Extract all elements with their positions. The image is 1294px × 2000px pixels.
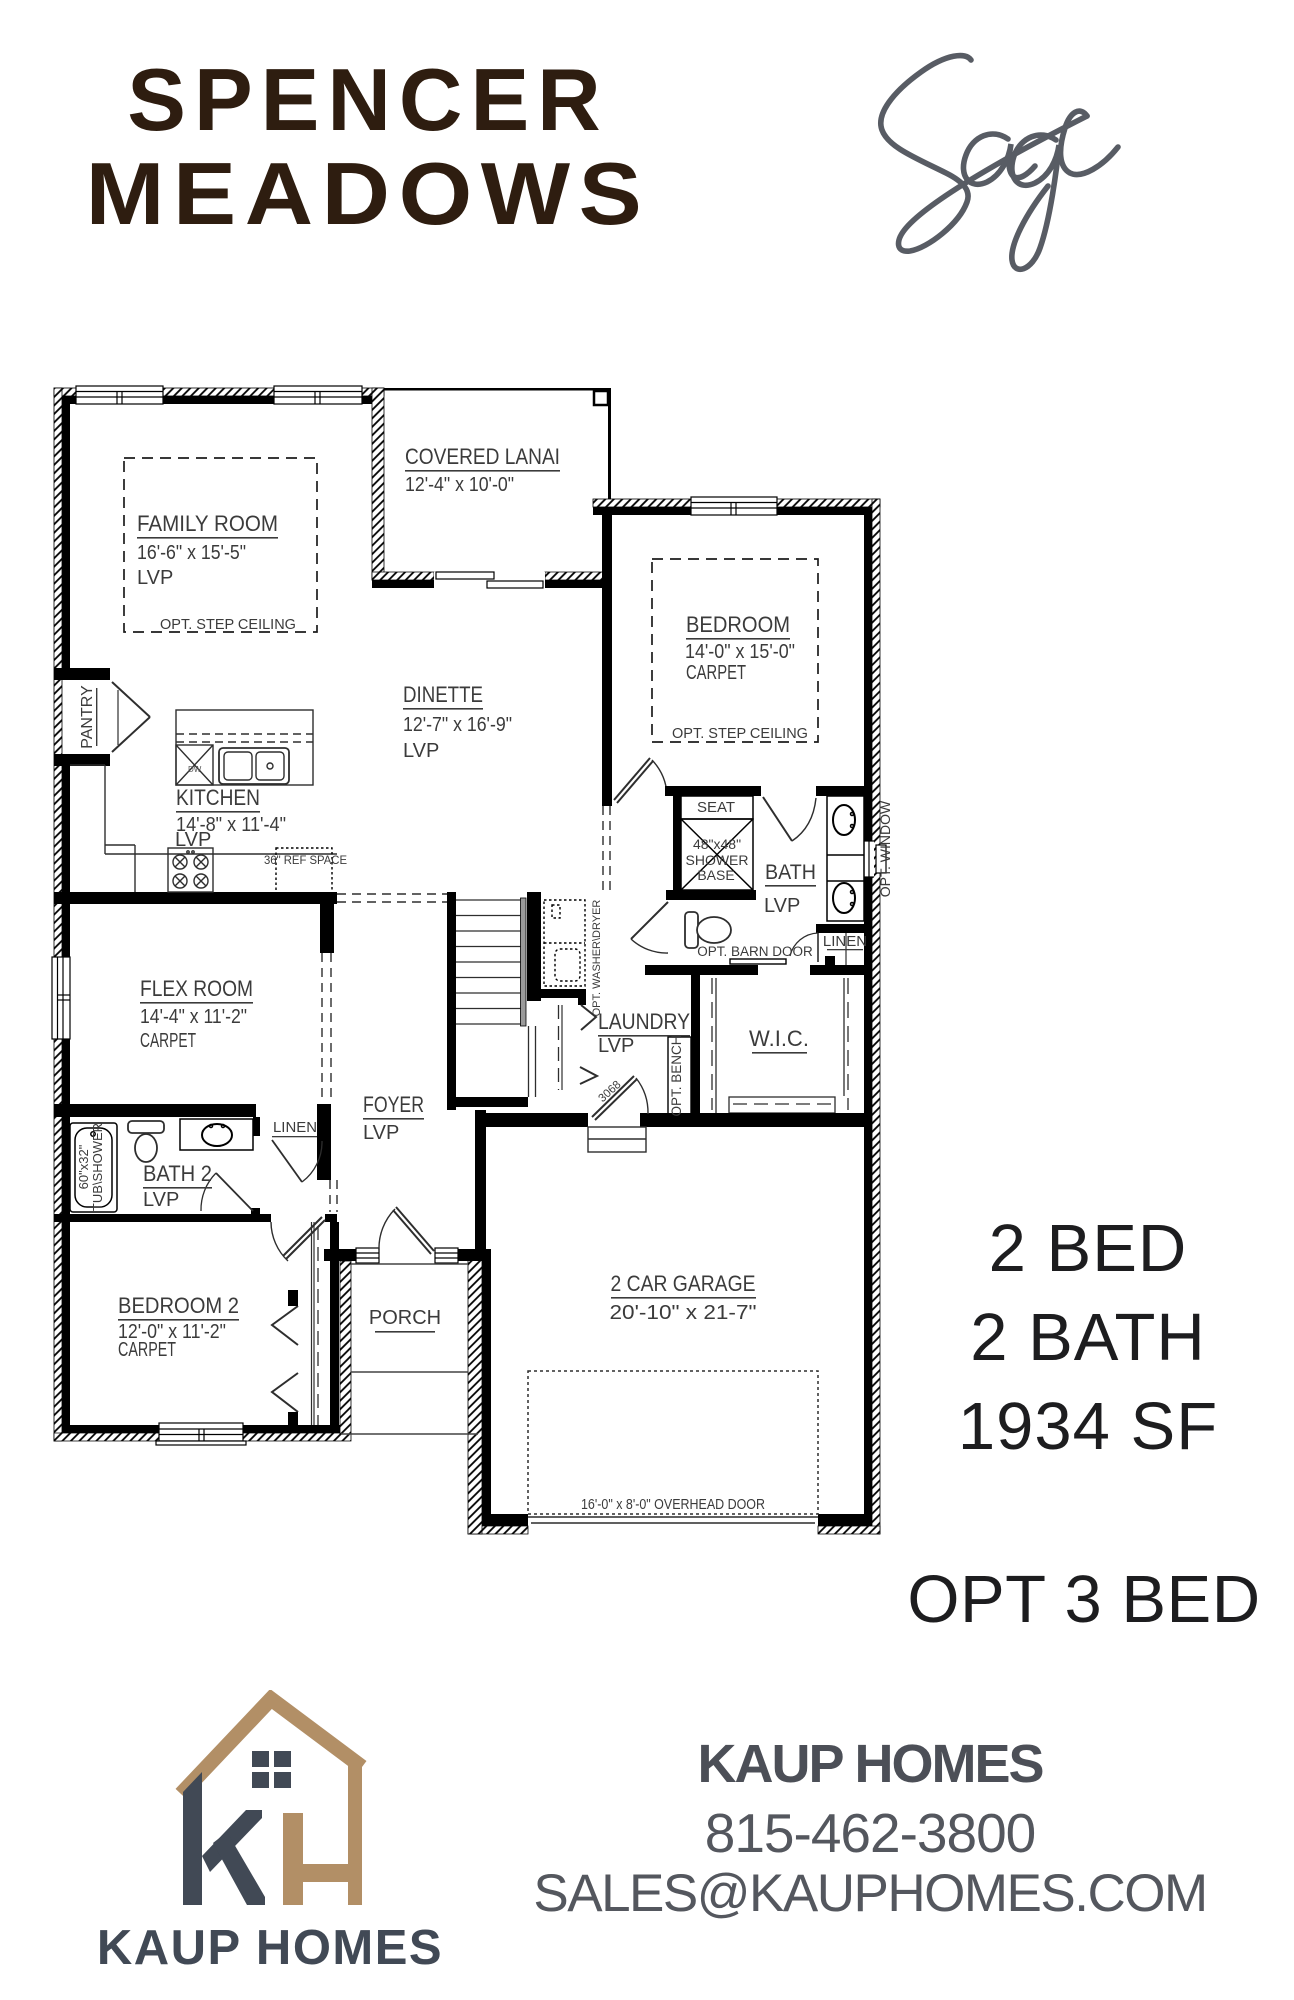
svg-text:LVP: LVP <box>175 829 211 851</box>
svg-text:OPT. WASHER\DRYER: OPT. WASHER\DRYER <box>591 900 603 1017</box>
svg-text:BATH: BATH <box>765 861 816 884</box>
svg-text:W.I.C.: W.I.C. <box>749 1026 809 1051</box>
svg-text:COVERED LANAI: COVERED LANAI <box>405 444 560 469</box>
svg-text:3068: 3068 <box>596 1079 623 1105</box>
svg-text:12'-4" x 10'-0": 12'-4" x 10'-0" <box>405 474 514 496</box>
svg-text:BATH 2: BATH 2 <box>143 1161 212 1186</box>
svg-text:OPT. WINDOW: OPT. WINDOW <box>877 800 893 897</box>
svg-text:KITCHEN: KITCHEN <box>176 785 260 810</box>
svg-text:LVP: LVP <box>764 895 800 917</box>
svg-text:TUB\SHOWER: TUB\SHOWER <box>90 1123 105 1211</box>
svg-text:LVP: LVP <box>137 567 173 589</box>
svg-text:LVP: LVP <box>403 740 439 762</box>
svg-text:OPT. BARN DOOR: OPT. BARN DOOR <box>697 944 813 959</box>
svg-text:SEAT: SEAT <box>697 799 735 816</box>
svg-text:14'-4" x 11'-2": 14'-4" x 11'-2" <box>140 1006 247 1028</box>
svg-text:PORCH: PORCH <box>369 1307 441 1329</box>
svg-text:OPT. STEP CEILING: OPT. STEP CEILING <box>672 726 808 742</box>
svg-text:OPT. STEP CEILING: OPT. STEP CEILING <box>160 617 296 633</box>
svg-text:BEDROOM 2: BEDROOM 2 <box>118 1293 239 1318</box>
svg-text:SHOWER: SHOWER <box>686 852 749 868</box>
svg-text:LVP: LVP <box>363 1122 399 1144</box>
svg-text:60"x32": 60"x32" <box>76 1144 91 1189</box>
svg-text:BASE: BASE <box>697 867 734 883</box>
svg-text:LINEN: LINEN <box>823 933 867 950</box>
svg-text:LAUNDRY: LAUNDRY <box>598 1009 690 1034</box>
svg-text:48"x48": 48"x48" <box>693 836 741 852</box>
svg-text:16'-0" x 8'-0" OVERHEAD DOOR: 16'-0" x 8'-0" OVERHEAD DOOR <box>581 1497 765 1513</box>
svg-text:LVP: LVP <box>598 1035 634 1057</box>
svg-text:2 CAR GARAGE: 2 CAR GARAGE <box>611 1271 756 1296</box>
svg-text:36" REF SPACE: 36" REF SPACE <box>264 855 347 867</box>
svg-text:CARPET: CARPET <box>118 1339 176 1361</box>
svg-text:PANTRY: PANTRY <box>79 685 96 749</box>
svg-text:FAMILY ROOM: FAMILY ROOM <box>137 511 278 536</box>
svg-text:12'-7" x 16'-9": 12'-7" x 16'-9" <box>403 714 512 736</box>
svg-text:LVP: LVP <box>143 1189 179 1211</box>
svg-text:FLEX ROOM: FLEX ROOM <box>140 976 253 1001</box>
svg-text:20'-10" x 21-7": 20'-10" x 21-7" <box>610 1302 757 1324</box>
svg-text:16'-6" x 15'-5": 16'-6" x 15'-5" <box>137 542 246 564</box>
svg-text:BEDROOM: BEDROOM <box>686 612 790 637</box>
svg-text:FOYER: FOYER <box>363 1092 424 1117</box>
svg-text:LINEN: LINEN <box>273 1119 317 1136</box>
svg-text:CARPET: CARPET <box>686 662 746 684</box>
svg-text:CARPET: CARPET <box>140 1030 196 1052</box>
svg-text:DINETTE: DINETTE <box>403 682 483 707</box>
svg-text:DW: DW <box>188 765 202 774</box>
svg-text:OPT. BENCH: OPT. BENCH <box>669 1035 684 1116</box>
svg-text:14'-0" x 15'-0": 14'-0" x 15'-0" <box>685 641 795 663</box>
